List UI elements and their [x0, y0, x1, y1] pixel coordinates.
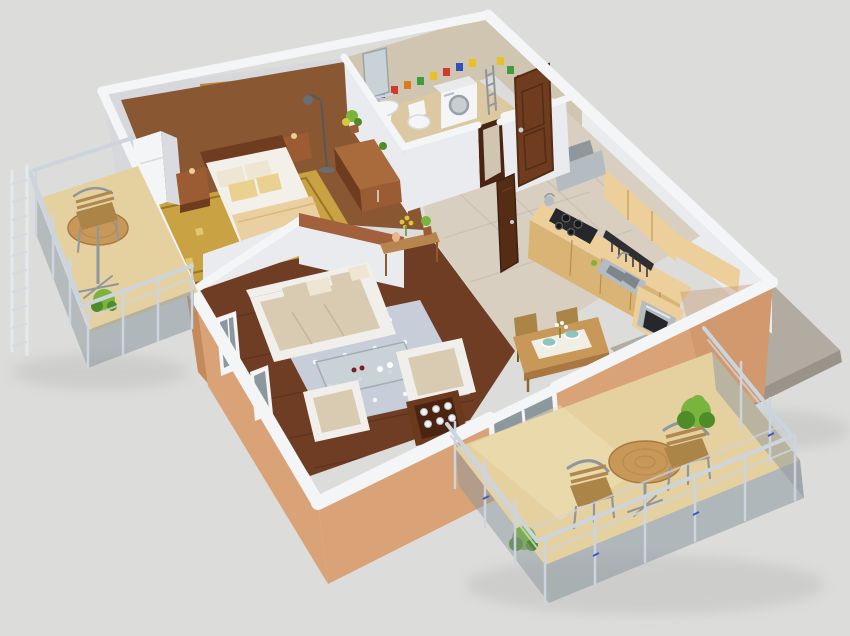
candle: [352, 368, 357, 373]
open-bathroom-door: [497, 174, 518, 272]
door-handle: [510, 220, 514, 224]
lamp-shade: [303, 95, 313, 105]
fruit: [591, 260, 597, 266]
green-plant: [421, 216, 431, 226]
vase: [392, 232, 400, 242]
floorplan-canvas: [0, 0, 850, 636]
dish: [377, 366, 383, 372]
toilet-bowl: [408, 115, 430, 129]
dresser-plant: [379, 142, 387, 150]
bowl: [543, 338, 556, 346]
table-lamp: [189, 168, 195, 174]
candle: [360, 366, 365, 371]
nightstand-left: [176, 167, 210, 213]
washer-door: [450, 96, 468, 114]
table-lamp: [291, 133, 297, 139]
entrance-door: [515, 64, 553, 186]
floorplan-render: [0, 0, 850, 636]
dish: [387, 362, 393, 368]
bowl: [566, 330, 579, 338]
door-handle: [519, 128, 524, 133]
